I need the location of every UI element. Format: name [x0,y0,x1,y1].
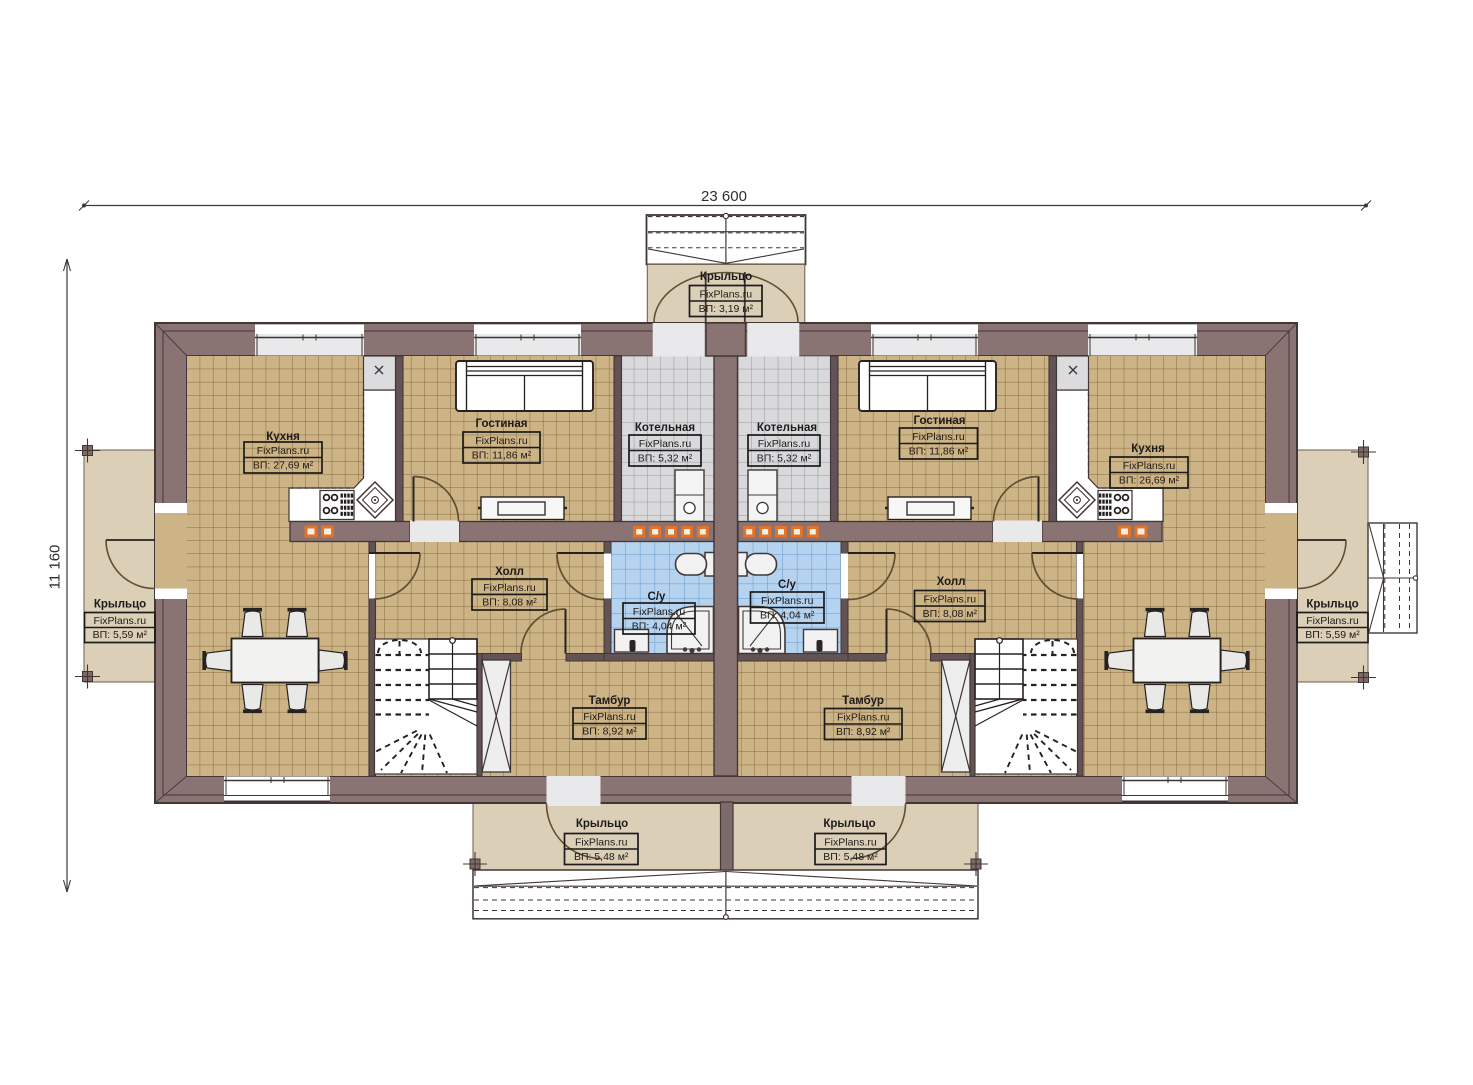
svg-text:ВП: 27,69 м²: ВП: 27,69 м² [253,460,314,472]
svg-text:FixPlans.ru: FixPlans.ru [758,438,811,450]
svg-text:FixPlans.ru: FixPlans.ru [824,837,877,849]
svg-text:ВП: 11,86 м²: ВП: 11,86 м² [909,446,969,458]
svg-text:ВП: 8,08 м²: ВП: 8,08 м² [923,608,978,620]
svg-text:Холл: Холл [937,576,966,588]
svg-text:С/у: С/у [778,579,797,591]
svg-text:FixPlans.ru: FixPlans.ru [257,445,310,457]
svg-text:ВП: 3,19 м²: ВП: 3,19 м² [699,303,754,315]
svg-text:ВП: 8,08 м²: ВП: 8,08 м² [482,597,537,609]
svg-text:Тамбур: Тамбур [589,695,631,707]
svg-text:Крыльцо: Крыльцо [94,599,146,611]
svg-text:FixPlans.ru: FixPlans.ru [761,595,814,607]
svg-text:FixPlans.ru: FixPlans.ru [1123,460,1176,472]
svg-text:ВП: 5,59 м²: ВП: 5,59 м² [93,629,148,641]
svg-text:ВП: 26,69 м²: ВП: 26,69 м² [1119,475,1180,487]
svg-text:FixPlans.ru: FixPlans.ru [483,582,536,594]
svg-text:23 600: 23 600 [701,188,747,205]
svg-text:Котельная: Котельная [757,422,817,434]
svg-text:FixPlans.ru: FixPlans.ru [912,431,965,443]
svg-text:Котельная: Котельная [635,422,695,434]
svg-text:ВП: 4,04 м²: ВП: 4,04 м² [760,610,815,622]
svg-text:FixPlans.ru: FixPlans.ru [639,438,692,450]
svg-text:Крыльцо: Крыльцо [823,818,875,830]
svg-text:Холл: Холл [495,566,524,578]
svg-text:FixPlans.ru: FixPlans.ru [94,615,147,627]
svg-text:FixPlans.ru: FixPlans.ru [475,435,528,447]
svg-text:Крыльцо: Крыльцо [576,818,628,830]
svg-text:ВП: 8,92 м²: ВП: 8,92 м² [582,726,637,738]
svg-text:FixPlans.ru: FixPlans.ru [575,837,628,849]
svg-text:Кухня: Кухня [1131,443,1165,455]
svg-text:Гостиная: Гостиная [476,418,528,430]
svg-text:С/у: С/у [648,591,667,603]
svg-text:ВП: 4,04 м²: ВП: 4,04 м² [632,621,687,633]
svg-text:ВП: 5,48 м²: ВП: 5,48 м² [574,851,629,863]
svg-text:ВП: 5,32 м²: ВП: 5,32 м² [638,453,693,465]
svg-text:ВП: 8,92 м²: ВП: 8,92 м² [836,726,891,738]
svg-text:Крыльцо: Крыльцо [700,271,752,283]
svg-text:FixPlans.ru: FixPlans.ru [924,594,977,606]
svg-text:ВП: 5,59 м²: ВП: 5,59 м² [1305,629,1360,641]
svg-text:FixPlans.ru: FixPlans.ru [837,712,890,724]
svg-text:Тамбур: Тамбур [842,695,884,707]
svg-text:FixPlans.ru: FixPlans.ru [633,606,686,618]
svg-text:11 160: 11 160 [47,545,64,590]
svg-text:ВП: 5,32 м²: ВП: 5,32 м² [757,453,812,465]
svg-text:FixPlans.ru: FixPlans.ru [700,289,753,301]
svg-text:ВП: 5,48 м²: ВП: 5,48 м² [823,851,878,863]
svg-text:Гостиная: Гостиная [914,415,966,427]
svg-text:FixPlans.ru: FixPlans.ru [583,711,636,723]
svg-text:FixPlans.ru: FixPlans.ru [1306,615,1359,627]
svg-text:Крыльцо: Крыльцо [1306,599,1358,611]
svg-text:ВП: 11,86 м²: ВП: 11,86 м² [472,450,532,462]
